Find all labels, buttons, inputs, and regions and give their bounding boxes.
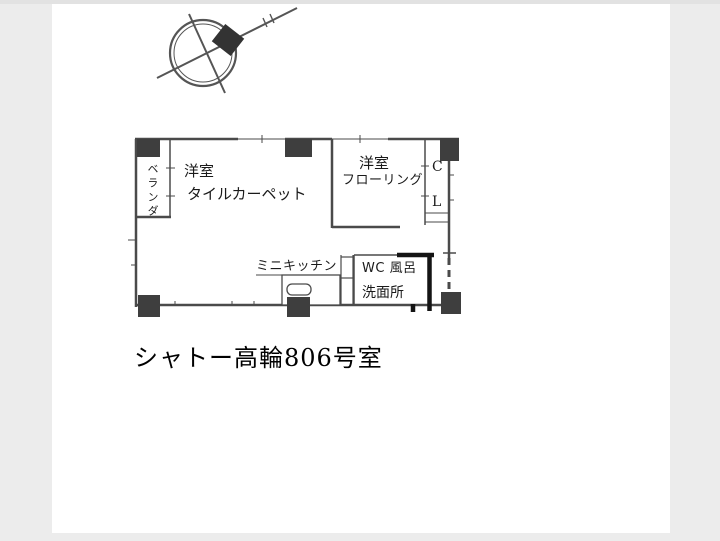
label-veranda: ベランダ — [142, 163, 160, 225]
label-kitchen: ミニキッチン — [256, 259, 337, 274]
label-wc-bath: WC 風呂 — [362, 261, 417, 276]
label-main-room-floor: タイルカーペット — [187, 185, 307, 203]
label-second-room-floor: フローリング — [342, 173, 423, 188]
floorplan-walls — [128, 135, 461, 307]
page-background: 洋室 タイルカーペット 洋室 フローリング C L ミニキッチン WC 風呂 洗… — [0, 0, 720, 541]
label-closet-c: C — [432, 159, 443, 175]
label-main-room-name: 洋室 — [184, 162, 214, 180]
label-closet-l: L — [432, 194, 441, 210]
compass-icon — [157, 8, 297, 93]
label-washroom: 洗面所 — [362, 285, 404, 301]
label-second-room-name: 洋室 — [359, 154, 389, 172]
floorplan-caption: シャトー高輪806号室 — [134, 338, 383, 373]
floorplan-drawing: 洋室 タイルカーペット 洋室 フローリング C L ミニキッチン WC 風呂 洗… — [0, 0, 720, 541]
